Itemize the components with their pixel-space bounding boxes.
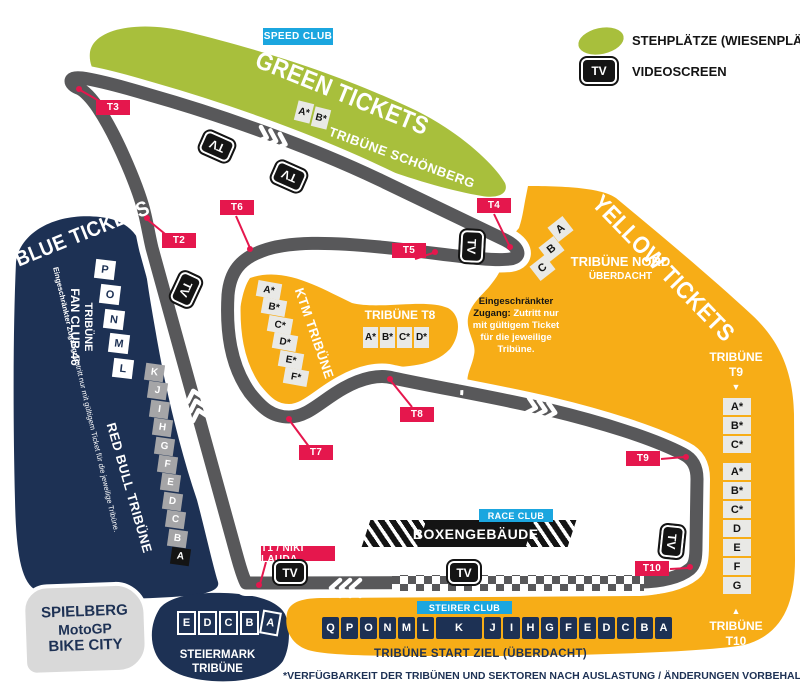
videoscreen-icon: TV bbox=[659, 524, 685, 558]
pit-building-core: BOXENGEBÄUDE bbox=[418, 520, 535, 547]
sector-box: N bbox=[103, 308, 125, 329]
steirer-club-label: STEIRER CLUB bbox=[417, 601, 512, 614]
sector-box: C bbox=[219, 611, 238, 635]
tribune-t10-heading: ▲ TRIBÜNE T10 bbox=[700, 604, 772, 649]
start-finish-checker bbox=[392, 575, 644, 591]
tv-icon-text: TV bbox=[664, 533, 680, 550]
speed-club-label: SPEED CLUB bbox=[263, 28, 333, 45]
sector-box: C* bbox=[397, 327, 412, 348]
tribune-t10-name: TRIBÜNE bbox=[700, 619, 772, 634]
sector-box: D bbox=[162, 492, 183, 511]
sector-box: F bbox=[560, 617, 577, 639]
videoscreen-icon: TV bbox=[274, 561, 306, 584]
sector-box: K bbox=[144, 363, 165, 382]
steiermark-tribune-label: STEIERMARK TRIBÜNE bbox=[153, 647, 281, 675]
sector-box: E bbox=[723, 539, 751, 556]
sector-box: A bbox=[170, 547, 191, 566]
sector-box: J bbox=[484, 617, 501, 639]
sector-box: I bbox=[149, 400, 170, 419]
sector-box: G bbox=[723, 577, 751, 594]
sector-box: H bbox=[522, 617, 539, 639]
turn-marker-t3: T3 bbox=[96, 100, 130, 115]
sector-box: C bbox=[617, 617, 634, 639]
videoscreen-icon: TV bbox=[460, 230, 485, 263]
tv-icon-text: TV bbox=[176, 280, 195, 300]
start-ziel-sectors: QPONMLKJIHGFEDCBA bbox=[322, 617, 672, 639]
sector-box: A* bbox=[363, 327, 378, 348]
sector-box: G bbox=[541, 617, 558, 639]
availability-footnote: *VERFÜGBARKEIT DER TRIBÜNEN UND SEKTOREN… bbox=[283, 670, 800, 682]
turn-marker-t2: T2 bbox=[162, 233, 196, 248]
sector-box: E bbox=[177, 611, 196, 635]
sector-box: B* bbox=[723, 482, 751, 499]
sector-box: E* bbox=[277, 350, 303, 370]
arrow-up-icon: ▲ bbox=[700, 604, 772, 619]
bike-city-line1: SPIELBERG bbox=[41, 601, 128, 622]
sector-box: H bbox=[152, 418, 173, 437]
sector-box: C* bbox=[723, 436, 751, 453]
sector-box: K bbox=[436, 617, 482, 639]
tribune-t10-num: T10 bbox=[700, 634, 772, 649]
sector-box: M bbox=[398, 617, 415, 639]
videoscreen-icon: TV bbox=[581, 58, 617, 84]
tribune-t9-sectors: A*B*C*A*B*C*DEFG bbox=[723, 398, 751, 594]
sector-box: A* bbox=[723, 463, 751, 480]
bike-city-line3: BIKE CITY bbox=[48, 636, 123, 657]
turn-marker-t6: T6 bbox=[220, 200, 254, 215]
sector-box: P bbox=[94, 259, 116, 280]
pit-building: BOXENGEBÄUDE bbox=[362, 520, 577, 547]
sector-box: L bbox=[112, 358, 134, 379]
bike-city-line2: MotoGP bbox=[58, 620, 112, 639]
sector-box: D* bbox=[414, 327, 429, 348]
race-club-label: RACE CLUB bbox=[479, 509, 553, 522]
sector-box: O bbox=[360, 617, 377, 639]
turn-marker-t10: T10 bbox=[635, 561, 669, 576]
sector-box: B* bbox=[723, 417, 751, 434]
sector-box: F bbox=[723, 558, 751, 575]
sector-box: P bbox=[341, 617, 358, 639]
sector-box: C* bbox=[723, 501, 751, 518]
sector-box: Q bbox=[322, 617, 339, 639]
tv-icon-text: TV bbox=[282, 566, 297, 580]
legend-videoscreen-label: VIDEOSCREEN bbox=[632, 64, 727, 79]
tribune-t9-name: TRIBÜNE bbox=[700, 350, 772, 365]
sector-box: E bbox=[160, 473, 181, 492]
videoscreen-icon: TV bbox=[448, 561, 480, 584]
legend-standing-label: STEHPLÄTZE (WIESENPLÄTZE) bbox=[632, 33, 800, 48]
yellow-restricted-note: Eingeschränkter Zugang: Zutritt nur mit … bbox=[466, 296, 566, 355]
turn-marker-t8: T8 bbox=[400, 407, 434, 422]
sector-box: B bbox=[636, 617, 653, 639]
sector-box: O bbox=[99, 284, 121, 305]
sector-box: D bbox=[598, 617, 615, 639]
turn-marker-t5: T5 bbox=[392, 243, 426, 258]
legend-standing-swatch bbox=[576, 24, 626, 59]
sector-box: B* bbox=[380, 327, 395, 348]
sector-box: D bbox=[723, 520, 751, 537]
sector-box: L bbox=[417, 617, 434, 639]
sector-box: I bbox=[503, 617, 520, 639]
sector-box: D bbox=[198, 611, 217, 635]
start-ziel-label: TRIBÜNE START ZIEL (ÜBERDACHT) bbox=[374, 646, 587, 660]
circuit-seating-map: { "legend": { "standing_label": "STEHPLÄ… bbox=[0, 0, 800, 697]
tv-icon-text: TV bbox=[279, 167, 299, 186]
steiermark-sectors: EDCBA bbox=[177, 611, 280, 635]
tv-icon-text: TV bbox=[591, 64, 606, 78]
sector-box: J bbox=[147, 381, 168, 400]
sector-box: B bbox=[240, 611, 259, 635]
tribune-t9-num: T9 bbox=[700, 365, 772, 380]
tribune-nord-label: TRIBÜNE NORD bbox=[568, 254, 673, 269]
sector-box: G bbox=[154, 436, 175, 455]
sector-box: M bbox=[108, 333, 130, 354]
sector-box: A bbox=[655, 617, 672, 639]
tribune-t8-sectors: A*B*C*D* bbox=[363, 327, 429, 348]
sector-box: B bbox=[167, 528, 188, 547]
arrow-down-icon: ▼ bbox=[700, 380, 772, 395]
sector-box: N bbox=[379, 617, 396, 639]
sector-box: E bbox=[579, 617, 596, 639]
tv-icon-text: TV bbox=[456, 566, 471, 580]
turn-marker-t9: T9 bbox=[626, 451, 660, 466]
tribune-t8-label: TRIBÜNE T8 bbox=[360, 308, 440, 322]
turn-marker-t4: T4 bbox=[477, 198, 511, 213]
pit-building-label: BOXENGEBÄUDE bbox=[413, 526, 539, 542]
tv-icon-text: TV bbox=[207, 137, 227, 156]
tribune-nord-sub-label: ÜBERDACHT bbox=[568, 271, 673, 282]
bike-city-box: SPIELBERG MotoGP BIKE CITY bbox=[20, 581, 149, 677]
turn-marker-t7: T7 bbox=[299, 445, 333, 460]
sector-box: C bbox=[165, 510, 186, 529]
tv-icon-text: TV bbox=[465, 238, 480, 254]
turn-marker-t1: T1 / NIKI LAUDA bbox=[261, 546, 335, 561]
tribune-t9-heading: TRIBÜNE T9 ▼ bbox=[700, 350, 772, 395]
sector-box: A* bbox=[723, 398, 751, 415]
sector-box: F bbox=[157, 455, 178, 474]
sector-box: A bbox=[259, 610, 282, 637]
